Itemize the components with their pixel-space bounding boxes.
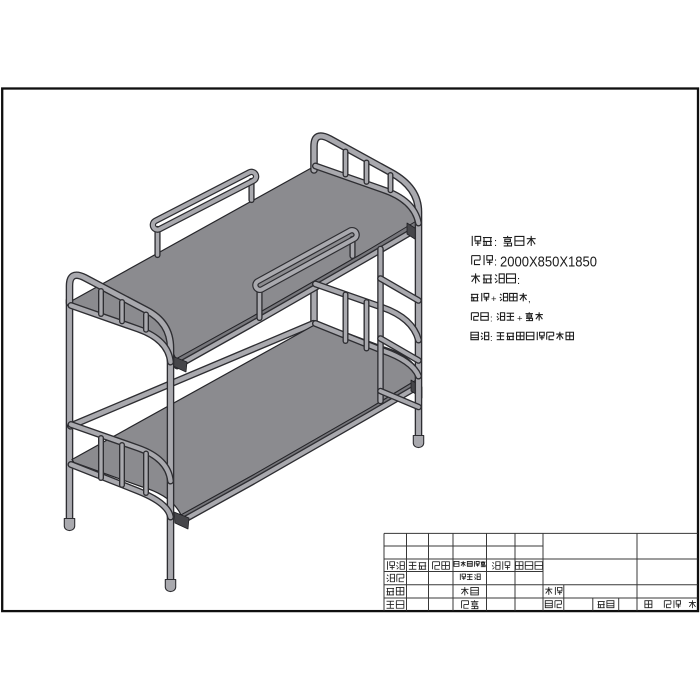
svg-text::: :	[494, 257, 497, 269]
svg-text::: :	[494, 237, 497, 249]
svg-text:+: +	[491, 294, 497, 305]
svg-text:,: ,	[528, 294, 531, 305]
svg-text:2000X850X1850: 2000X850X1850	[500, 253, 597, 270]
svg-text:+: +	[517, 313, 523, 324]
svg-text::: :	[517, 275, 520, 287]
svg-text::: :	[490, 313, 493, 324]
svg-text::: :	[490, 333, 493, 344]
